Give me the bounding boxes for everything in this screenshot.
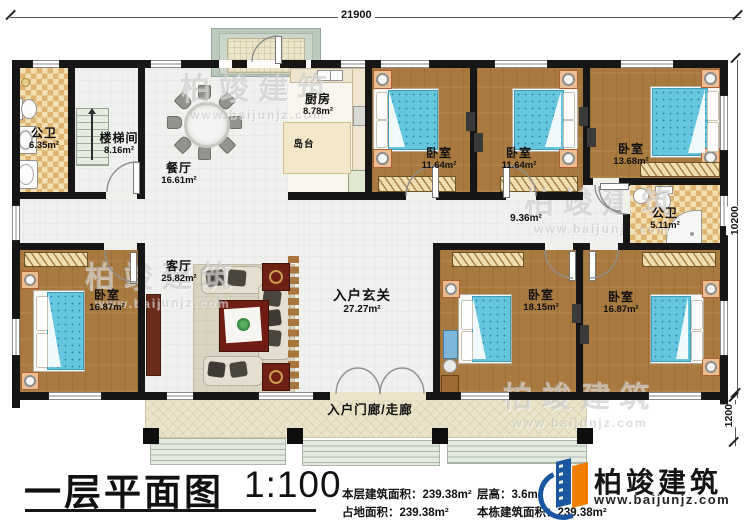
porch-pillar (143, 428, 159, 444)
wardrobe (452, 252, 524, 267)
nightstand (701, 69, 720, 88)
bed-blanket (688, 89, 705, 153)
wardrobe (378, 176, 456, 192)
room-label-living: 客厅25.82m² (148, 259, 210, 285)
window (166, 392, 194, 400)
room-label-bath1: 公卫6.35m² (20, 126, 68, 152)
room-label-dining: 餐厅16.61m² (148, 161, 210, 187)
dimension-right-height: 10200 (726, 206, 744, 235)
room-label-foyer: 入户玄关27.27m² (320, 288, 404, 316)
pillow (563, 120, 575, 148)
shower-drain (690, 232, 694, 236)
kitchen-sink (317, 70, 331, 81)
entry-door-opening (330, 392, 426, 400)
sliding-door-panel (474, 133, 483, 152)
window (12, 205, 20, 241)
room-label-kitchen: 厨房8.78m² (291, 92, 345, 118)
door-opening-bath2 (623, 186, 630, 214)
door-opening-bedF (590, 243, 618, 250)
pillow (707, 91, 719, 121)
room-label-porch: 入户门廊/走廊 (240, 403, 500, 418)
door-opening-bedD (104, 243, 137, 250)
window (494, 60, 548, 68)
window (150, 60, 182, 68)
stat-footprint-area: 占地面积：239.38m² (342, 504, 449, 520)
faucet-icon (21, 78, 30, 87)
nightstand (559, 149, 578, 168)
pillow (707, 122, 719, 152)
logo-building-blue-icon (556, 458, 571, 508)
nightstand (702, 280, 720, 298)
dining-table (184, 102, 230, 148)
nightstand (21, 271, 39, 289)
sliding-door-panel (579, 107, 588, 126)
bed-blanket (48, 293, 61, 367)
wall-bath1-stair (68, 60, 75, 199)
sliding-door-panel (580, 325, 589, 344)
room-label-bedroom-top-3: 卧室13.68m² (600, 142, 662, 168)
plant-icon (237, 318, 250, 331)
wardrobe (24, 252, 88, 267)
porch-pillar (432, 428, 448, 444)
window (460, 392, 510, 400)
sheet-title: 一层平面图 (24, 462, 224, 516)
bed-blanket (676, 297, 688, 359)
floor-plan-sheet: 21900 10200 1200 (0, 0, 750, 525)
porch-pillar (287, 428, 303, 444)
title-underline (25, 509, 316, 512)
nightstand (373, 70, 392, 89)
door-leaf (569, 251, 576, 281)
kitchen-sink (330, 70, 343, 81)
wardrobe (642, 252, 716, 267)
red-mat (262, 263, 290, 291)
window (648, 392, 702, 400)
sofa-cushion (227, 269, 246, 287)
stool-icon (443, 359, 457, 373)
room-label-bedroom-top-1: 卧室11.64m² (408, 146, 470, 172)
sofa-cushion (229, 361, 248, 378)
door-leaf (600, 183, 629, 190)
pillow (563, 92, 575, 120)
dimension-tick (732, 10, 742, 20)
door-leaf (130, 252, 137, 284)
pillow (691, 300, 703, 330)
door-leaf (589, 251, 596, 281)
dimension-tick (730, 53, 740, 63)
window (258, 392, 314, 400)
dimension-tick (728, 437, 738, 447)
dining-chair (167, 116, 182, 129)
room-label-bedroom-bottom-left: 卧室16.87m² (76, 288, 138, 314)
window (720, 300, 728, 356)
window (720, 95, 728, 151)
window (12, 318, 20, 356)
door-leaf (275, 36, 282, 64)
dimension-top-width: 21900 (338, 9, 375, 21)
bed-blanket (545, 91, 561, 147)
pillow (691, 331, 703, 361)
pillow (376, 120, 388, 148)
dimension-porch-depth: 1200 (720, 404, 738, 427)
nightstand (21, 372, 39, 390)
sofa-cushion (207, 361, 226, 378)
sliding-door-panel (572, 304, 581, 323)
pillow (461, 331, 473, 361)
dining-chair (198, 85, 211, 100)
nightstand (442, 280, 460, 298)
stat-storey-height: 层高：3.6m (477, 486, 538, 502)
nightstand (373, 149, 392, 168)
room-label-bedroom-top-2: 卧室11.64m² (488, 146, 550, 172)
sliding-door-panel (466, 112, 475, 131)
toilet-icon (21, 99, 37, 119)
sheet-scale: 1:100 (244, 464, 342, 506)
tv-cabinet (146, 294, 161, 376)
window (620, 60, 674, 68)
door-leaf (133, 162, 140, 194)
entry-steps-left (150, 438, 286, 465)
sink-icon (633, 188, 649, 204)
wall-kitchen-bed1 (365, 60, 372, 200)
nightstand (559, 70, 578, 89)
wall-bedE-west (433, 243, 440, 400)
stair-arrow-head (88, 108, 96, 114)
bed-blanket (473, 297, 486, 359)
window (32, 60, 60, 68)
wall-stub (280, 60, 306, 68)
wall-stub (232, 60, 247, 68)
bed-blanket (389, 91, 405, 147)
door-opening-bedE (545, 243, 573, 250)
wardrobe (500, 176, 578, 192)
pillow (376, 92, 388, 120)
room-label-stairwell: 楼梯间8.16m² (88, 131, 150, 157)
room-label-bath2: 公卫5.11m² (636, 206, 694, 232)
desk-icon (443, 330, 458, 359)
room-label-bedroom-bottom-3: 卧室16.87m² (590, 290, 652, 316)
window (48, 392, 102, 400)
nightstand (702, 358, 720, 376)
window (380, 60, 430, 68)
room-label-bedroom-bottom-2: 卧室18.15m² (510, 288, 572, 314)
room-label-island: 岛台 (283, 139, 325, 150)
sliding-door-panel (587, 128, 596, 147)
logo-url: www.baijunjz.com (594, 492, 730, 507)
stat-floor-area: 本层建筑面积：239.38m² (342, 486, 472, 502)
red-mat (262, 363, 290, 391)
door-opening-bed2 (506, 192, 536, 200)
dimension-line-top (10, 17, 741, 18)
pillow (461, 300, 473, 330)
window (340, 60, 366, 68)
pillow (36, 333, 48, 368)
wall-bedD-east (138, 243, 145, 400)
entry-steps-middle (302, 440, 440, 466)
logo-building-orange-icon (572, 462, 588, 508)
room-label-hallway: 9.36m² (494, 213, 558, 225)
pillow (36, 296, 48, 331)
dimension-tick (5, 10, 15, 20)
porch-pillar (577, 428, 593, 444)
